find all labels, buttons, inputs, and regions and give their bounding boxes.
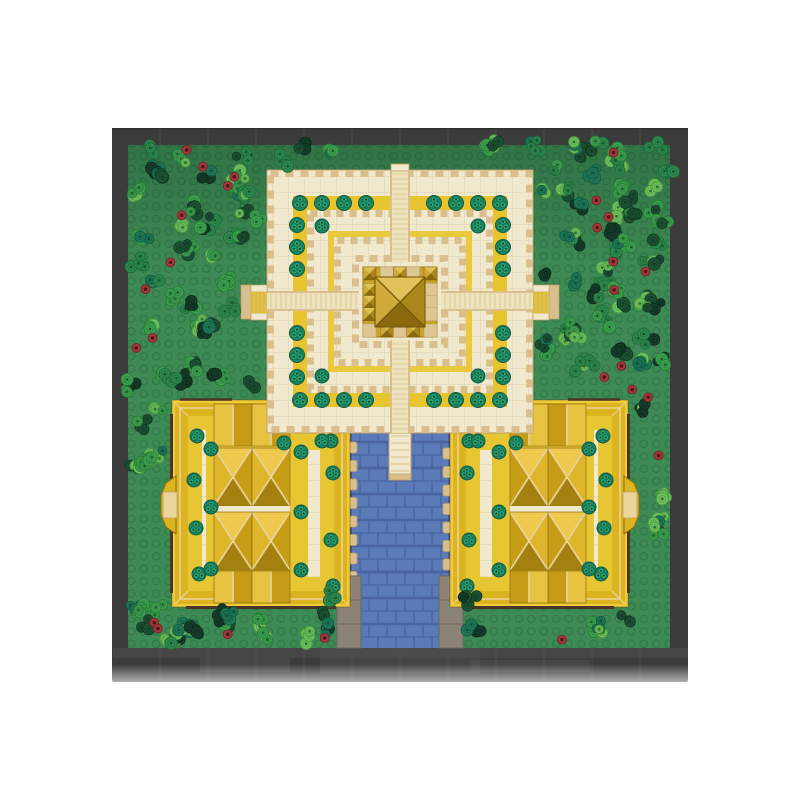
- gable-roof: [214, 404, 252, 446]
- gable-roof: [510, 571, 548, 603]
- bush: [290, 348, 305, 363]
- plant-cluster: [185, 296, 198, 311]
- bush: [204, 442, 218, 456]
- red-flower: [141, 285, 150, 294]
- bush: [492, 505, 506, 519]
- bush: [315, 196, 330, 211]
- bush: [290, 240, 305, 255]
- bush: [290, 262, 305, 277]
- bush: [293, 196, 308, 211]
- photo-canvas: [0, 0, 800, 800]
- bush: [496, 262, 511, 277]
- hip-roof-pavilion: [214, 512, 252, 570]
- bush: [509, 436, 523, 450]
- red-flower: [320, 634, 329, 643]
- plant-cluster: [323, 144, 339, 157]
- bush: [462, 533, 476, 547]
- bush: [471, 434, 485, 448]
- bush: [337, 196, 352, 211]
- bush: [471, 393, 486, 408]
- bush: [427, 393, 442, 408]
- bush: [471, 219, 485, 233]
- bush: [496, 218, 511, 233]
- plant-cluster: [659, 164, 680, 178]
- bush: [492, 563, 506, 577]
- stair-arm: [533, 285, 559, 320]
- hip-roof-pavilion: [510, 512, 548, 570]
- red-flower: [132, 344, 141, 353]
- bush: [324, 533, 338, 547]
- red-flower: [617, 362, 626, 371]
- bush: [315, 219, 329, 233]
- bush: [496, 326, 511, 341]
- temple-pyramid: [241, 164, 559, 433]
- stairway: [390, 170, 410, 262]
- red-flower: [604, 213, 613, 222]
- water-causeway: [337, 428, 463, 648]
- bush: [449, 196, 464, 211]
- bush: [471, 196, 486, 211]
- bush: [204, 562, 218, 576]
- bush: [427, 196, 442, 211]
- plant-cluster: [603, 321, 615, 335]
- gable-roof: [548, 571, 586, 603]
- bush: [294, 563, 308, 577]
- red-flower: [182, 146, 191, 155]
- stair-arm: [241, 285, 267, 320]
- red-flower: [592, 196, 601, 205]
- red-flower: [166, 258, 175, 267]
- bush: [189, 521, 203, 535]
- stone-pier: [389, 428, 411, 480]
- red-flower: [654, 451, 663, 460]
- lego-temple-photo: [0, 0, 800, 800]
- red-flower: [223, 630, 232, 639]
- bush: [449, 393, 464, 408]
- bush: [187, 473, 201, 487]
- hip-roof-pavilion: [252, 448, 290, 506]
- bush: [290, 370, 305, 385]
- bush: [471, 369, 485, 383]
- red-flower: [641, 267, 650, 276]
- red-flower: [600, 373, 609, 382]
- bush: [290, 326, 305, 341]
- red-flower: [644, 393, 653, 402]
- bush: [204, 500, 218, 514]
- hip-roof-pavilion: [214, 448, 252, 506]
- stairway: [390, 340, 410, 433]
- bush: [293, 393, 308, 408]
- bush: [493, 196, 508, 211]
- bush: [315, 393, 330, 408]
- bush: [582, 442, 596, 456]
- bush: [492, 445, 506, 459]
- hip-roof-pavilion: [548, 448, 586, 506]
- red-flower: [223, 181, 232, 190]
- plant-cluster: [253, 613, 269, 624]
- hip-roof-pavilion: [548, 512, 586, 570]
- bush: [315, 434, 329, 448]
- gable-roof: [214, 571, 252, 603]
- bush: [582, 500, 596, 514]
- hip-roof-pavilion: [510, 448, 548, 506]
- bush: [190, 429, 204, 443]
- bush: [596, 429, 610, 443]
- stairway: [267, 291, 359, 311]
- stairway: [441, 291, 533, 311]
- bush: [294, 445, 308, 459]
- red-flower: [230, 172, 239, 181]
- bush: [460, 466, 474, 480]
- red-flower: [199, 162, 208, 171]
- red-flower: [610, 286, 619, 295]
- red-flower: [558, 635, 567, 644]
- bush: [582, 562, 596, 576]
- red-flower: [593, 223, 602, 232]
- bush: [326, 466, 340, 480]
- bush: [359, 393, 374, 408]
- red-flower: [148, 333, 157, 342]
- bush: [496, 240, 511, 255]
- red-flower: [154, 624, 163, 633]
- bush: [597, 521, 611, 535]
- bush: [496, 348, 511, 363]
- bush: [290, 218, 305, 233]
- bush: [294, 505, 308, 519]
- central-shrine: [363, 267, 437, 337]
- bush: [496, 370, 511, 385]
- bush: [315, 369, 329, 383]
- bush: [359, 196, 374, 211]
- bush: [599, 473, 613, 487]
- bush: [337, 393, 352, 408]
- photo-fade: [96, 664, 704, 704]
- red-flower: [628, 385, 637, 394]
- red-flower: [609, 257, 618, 266]
- gable-roof: [548, 404, 586, 446]
- hip-roof-pavilion: [252, 512, 290, 570]
- red-flower: [609, 148, 618, 157]
- bush: [493, 393, 508, 408]
- red-flower: [177, 211, 186, 220]
- gable-roof: [252, 571, 290, 603]
- bush: [277, 436, 291, 450]
